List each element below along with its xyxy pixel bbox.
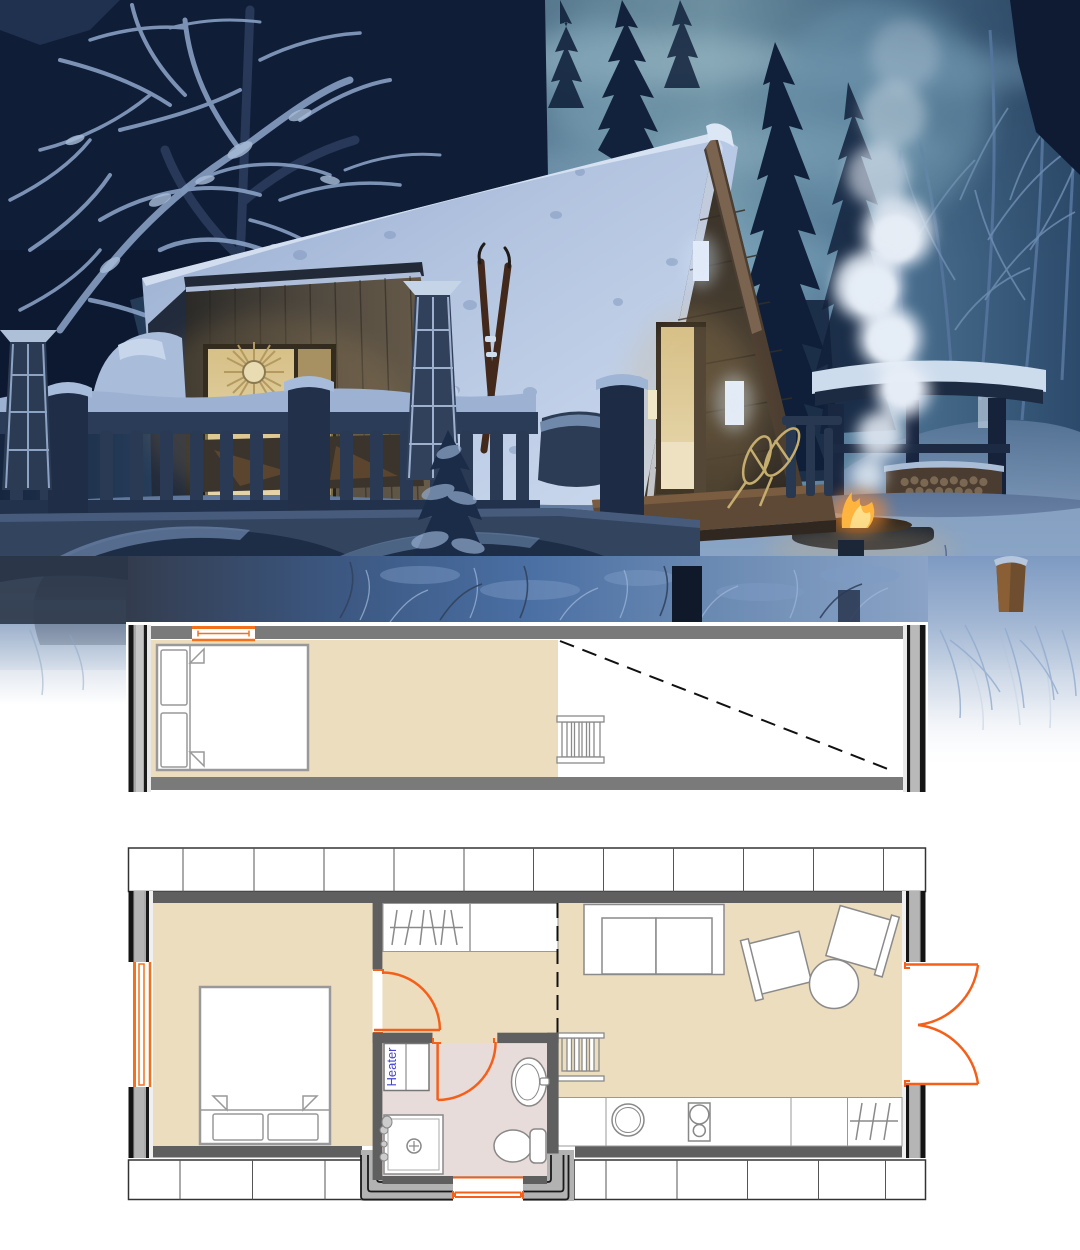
svg-text:Heater: Heater [384,1047,399,1087]
